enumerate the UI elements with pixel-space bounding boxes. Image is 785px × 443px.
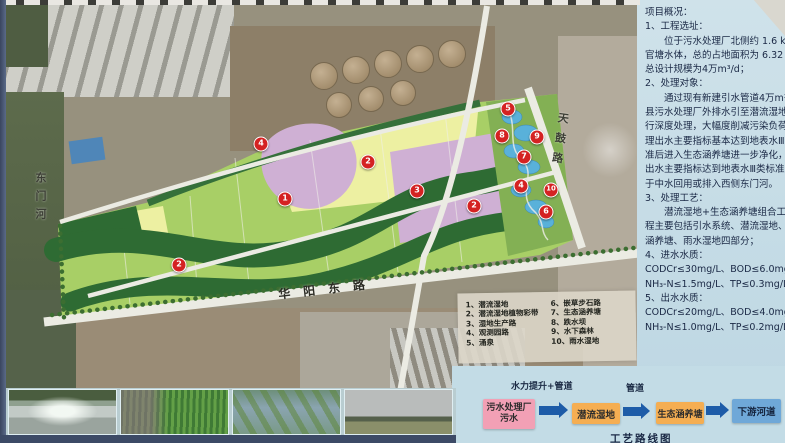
- panel-text-line: NH₃-N≤1.0mg/L、TP≤0.2mg/L。: [645, 321, 785, 335]
- flow-box-ecological-pond: 生态涵养塘: [656, 402, 704, 424]
- flow-arrow-icon: [706, 406, 720, 415]
- panel-text-line: 总设计规模为4万m³/d；: [645, 63, 785, 77]
- photo-wetland-channel: [232, 389, 341, 435]
- panel-text-line: 涵养塘、雨水湿地四部分；: [645, 235, 785, 249]
- photo-pond-aerator: [8, 389, 117, 435]
- map-marker-9: 9: [530, 130, 545, 145]
- panel-text-line: NH₃-N≤1.5mg/L、TP≤0.3mg/L；: [645, 278, 785, 292]
- map-marker-4: 4: [514, 179, 529, 194]
- panel-text-line: 位于污水处理厂北侧约 1.6 km 处: [645, 35, 785, 49]
- flow-caption: 工艺路线图: [610, 431, 673, 443]
- legend-item: 9、水下森林: [551, 326, 601, 336]
- map-marker-8: 8: [495, 129, 510, 144]
- process-flow-diagram: 水力提升+管道 管道 污水处理厂 污水 潜流湿地 生态涵养塘 下游河道 工艺路线…: [452, 366, 785, 443]
- panel-text-line: 2、处理对象：: [645, 77, 785, 91]
- board-frame-left: [0, 0, 6, 443]
- map-marker-2: 2: [361, 155, 376, 170]
- panel-text-line: 理出水主要指标基本达到地表水Ⅲ类标: [645, 135, 785, 149]
- flow-box-subsurface-wetland: 潜流湿地: [572, 403, 620, 424]
- map-legend: 1、潜流湿地2、潜流湿地植物彩带3、湿地生产路4、观测园路5、涌泉 6、嵌草步石…: [457, 290, 636, 363]
- panel-text-line: 出水主要指标达到地表水Ⅲ类标准后用: [645, 163, 785, 177]
- panel-text-line: 行深度处理，大幅度削减污染负荷，处: [645, 120, 785, 134]
- map-marker-4: 4: [254, 137, 269, 152]
- river-label-east-gate: 东门河: [32, 172, 48, 226]
- flow-arrow2-label: 管道: [626, 381, 644, 394]
- flow-box-downstream-river: 下游河道: [732, 399, 781, 423]
- panel-text-line: 准后进入生态涵养塘进一步净化，处理: [645, 149, 785, 163]
- map-marker-6: 6: [539, 205, 554, 220]
- panel-text-line: 县污水处理厂外排水引至潜流湿地区进: [645, 106, 785, 120]
- panel-text-line: 于中水回用或排入西侧东门河。: [645, 178, 785, 192]
- legend-column-left: 1、潜流湿地2、潜流湿地植物彩带3、湿地生产路4、观测园路5、涌泉: [466, 299, 540, 347]
- panel-text-line: 通过现有新建引水管道4万m³/d将: [645, 92, 785, 106]
- panel-text-line: 1、工程选址：: [645, 20, 785, 34]
- panel-text-line: 官塘水体，总的占地面积为 6.32 公顷: [645, 49, 785, 63]
- panel-text-line: 潜流湿地+生态涵养塘组合工艺；工: [645, 206, 785, 220]
- map-marker-3: 3: [410, 184, 425, 199]
- poster-photo: 42132258974106 东门河 华阳东路 天鼓路 1、潜流湿地2、潜流湿地…: [0, 0, 785, 443]
- cropped-title-strip: [0, 0, 640, 5]
- map-marker-5: 5: [501, 102, 516, 117]
- panel-text-line: 5、出水水质：: [645, 292, 785, 306]
- panel-text-line: 3、处理工艺：: [645, 192, 785, 206]
- photo-reed-field: [120, 389, 229, 435]
- legend-item: 7、生态涵养塘: [551, 307, 601, 317]
- panel-text-line: CODCr≤20mg/L、BOD≤4.0mg/L、: [645, 306, 785, 320]
- photo-glare: [580, 120, 640, 180]
- flow-arrow-icon: [539, 406, 559, 415]
- flow-arrow1-label: 水力提升+管道: [511, 379, 573, 392]
- legend-item: 2、潜流湿地植物彩带: [466, 309, 539, 320]
- board-frame-bottom: [0, 435, 456, 443]
- photo-wetland-vista: [344, 389, 453, 435]
- map-marker-1: 1: [278, 192, 293, 207]
- flow-box-sewage-plant: 污水处理厂 污水: [483, 399, 535, 429]
- legend-item: 10、雨水湿地: [551, 336, 601, 346]
- reference-photos: [6, 388, 456, 436]
- legend-column-right: 6、嵌草步石路7、生态涵养塘8、跌水坝9、水下森林10、雨水湿地: [551, 298, 602, 346]
- map-marker-2: 2: [467, 199, 482, 214]
- project-overview-text: 项目概况：1、工程选址：位于污水处理厂北侧约 1.6 km 处官塘水体，总的占地…: [645, 6, 785, 335]
- legend-item: 5、涌泉: [466, 337, 539, 348]
- flow-arrow-icon: [623, 407, 641, 416]
- panel-text-line: CODCr≤30mg/L、BOD≤6.0mg/L、: [645, 263, 785, 277]
- map-marker-10: 10: [544, 183, 559, 198]
- panel-text-line: 程主要包括引水系统、潜流湿地、生态: [645, 220, 785, 234]
- map-marker-7: 7: [517, 150, 532, 165]
- panel-text-line: 4、进水水质：: [645, 249, 785, 263]
- map-marker-2: 2: [172, 258, 187, 273]
